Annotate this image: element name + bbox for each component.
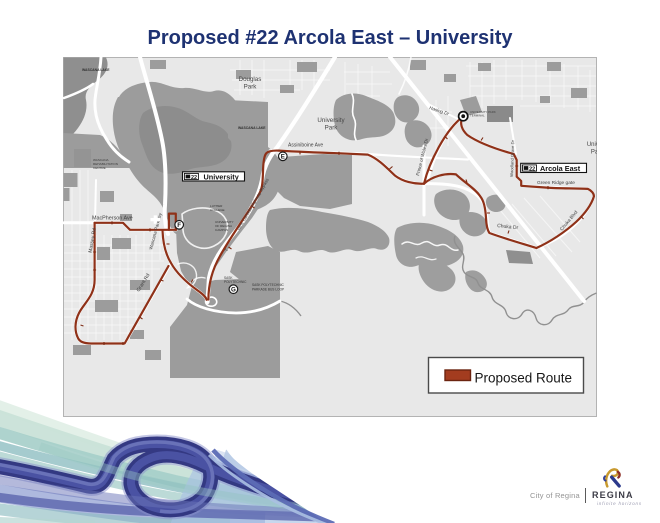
svg-text:COLLEGE: COLLEGE bbox=[210, 208, 225, 212]
svg-text:E: E bbox=[281, 154, 285, 161]
svg-text:Park: Park bbox=[244, 84, 258, 91]
svg-text:PARKADE BUS LOOP: PARKADE BUS LOOP bbox=[252, 288, 284, 292]
svg-text:Assiniboine Ave: Assiniboine Ave bbox=[288, 143, 323, 149]
svg-text:University: University bbox=[587, 142, 597, 148]
svg-text:CENTRE: CENTRE bbox=[93, 166, 106, 170]
svg-text:22: 22 bbox=[529, 166, 535, 172]
svg-text:22: 22 bbox=[191, 175, 197, 181]
svg-text:Arcola East: Arcola East bbox=[540, 164, 581, 173]
svg-text:WASCANA LAKE: WASCANA LAKE bbox=[82, 68, 110, 72]
svg-text:Douglas: Douglas bbox=[239, 76, 262, 83]
svg-text:Park: Park bbox=[325, 125, 339, 132]
svg-text:MacPherson Ave: MacPherson Ave bbox=[92, 216, 133, 222]
svg-text:Green Ridge gate: Green Ridge gate bbox=[537, 180, 575, 186]
svg-text:Park: Park bbox=[591, 150, 597, 156]
svg-text:WASCANA LAKE: WASCANA LAKE bbox=[238, 126, 266, 130]
svg-text:University: University bbox=[317, 117, 345, 124]
svg-text:TERMINAL: TERMINAL bbox=[470, 114, 485, 118]
svg-text:G: G bbox=[231, 287, 236, 294]
svg-text:CAMPUS: CAMPUS bbox=[215, 228, 228, 232]
svg-text:University: University bbox=[204, 172, 240, 181]
svg-text:POLYTECHNIC: POLYTECHNIC bbox=[224, 280, 247, 284]
svg-text:SASK POLYTECHNIC: SASK POLYTECHNIC bbox=[252, 283, 285, 287]
svg-text:Proposed Route: Proposed Route bbox=[475, 371, 573, 386]
svg-text:F: F bbox=[177, 222, 181, 229]
